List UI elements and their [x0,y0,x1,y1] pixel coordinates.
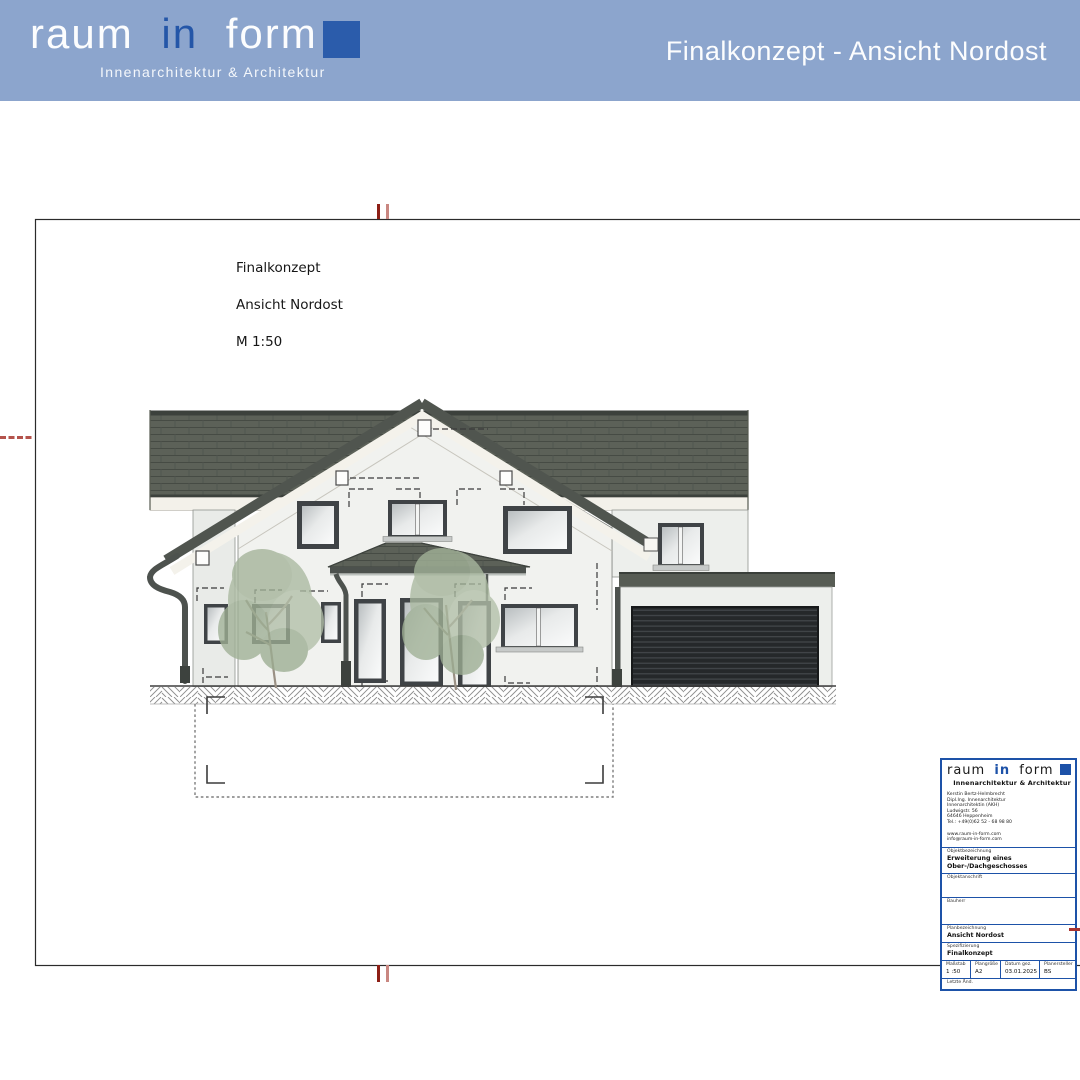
field-objektbezeichnung: Objektbezeichnung Erweiterung eines Ober… [942,847,1075,873]
logo-word-in: in [161,10,198,57]
meta-value: 1 :50 [946,968,969,976]
field-value [947,881,1072,895]
meta-label: Plangröße [975,962,999,968]
architect-address: Kerstin Bertz-Helmbrecht Dipl.Ing. Innen… [942,790,1075,828]
garage-door [632,607,818,688]
page-title: Finalkonzept - Ansicht Nordost [666,36,1047,67]
meta-label: Planersteller [1044,962,1070,968]
header-banner: raum in form Innenarchitektur & Architek… [0,0,1080,101]
title-block: raum in form Innenarchitektur & Architek… [940,758,1077,991]
field-spezifizierung: Spezifizierung Finalkonzept [942,942,1075,960]
contact-line: info@raum-in-form.com [947,837,1075,843]
tb-logo-square-icon [1060,764,1071,775]
address-line: Tel.: +49(0)62 52 - 68 98 80 [947,820,1075,826]
title-block-tagline: Innenarchitektur & Architektur [942,778,1075,790]
registration-mark-right [1069,928,1080,931]
meta-value: 03.01.2025 [1005,968,1038,976]
logo-tagline: Innenarchitektur & Architektur [100,64,326,80]
drawing-label-line1: Finalkonzept [236,260,321,276]
meta-planersteller: Planersteller BS [1040,961,1071,978]
architect-contact: www.raum-in-form.com info@raum-in-form.c… [942,828,1075,847]
title-block-logo: raum in form [942,760,1075,778]
tb-logo-form: form [1019,763,1053,778]
company-logo: raum in form [30,10,318,58]
meta-massstab: Maßstab 1 :50 [942,961,971,978]
field-letzte-aenderung: Letzte Änd. [942,978,1075,989]
drawing-label: Finalkonzept Ansicht Nordost M 1:50 [236,259,343,352]
drawing-label-line2: Ansicht Nordost [236,297,343,313]
field-planbezeichnung: Planbezeichnung Ansicht Nordost [942,924,1075,942]
meta-value: A2 [975,968,999,976]
meta-label: Maßstab [946,962,969,968]
field-value: Finalkonzept [947,950,1072,958]
garage [612,572,835,688]
meta-grid: Maßstab 1 :50 Plangröße A2 Datum gez. 03… [942,960,1075,978]
field-label: Letzte Änd. [947,980,1072,986]
ground [150,686,836,704]
field-objektanschrift: Objektanschrift [942,873,1075,897]
drawing-label-line3: M 1:50 [236,334,282,350]
plan-sheet-canvas [0,0,1080,1080]
meta-plangroesse: Plangröße A2 [971,961,1001,978]
field-bauherr: Bauherr [942,897,1075,924]
field-value [947,905,1072,922]
meta-datum: Datum gez. 03.01.2025 [1001,961,1040,978]
tb-logo-raum: raum [947,763,985,778]
logo-word-form: form [226,10,318,57]
field-value: Ansicht Nordost [947,932,1072,940]
meta-value: BS [1044,968,1070,976]
field-value: Erweiterung eines Ober-/Dachgeschosses [947,855,1072,871]
logo-square-icon [323,21,360,58]
tb-logo-in: in [994,763,1010,778]
logo-word-raum: raum [30,10,134,57]
